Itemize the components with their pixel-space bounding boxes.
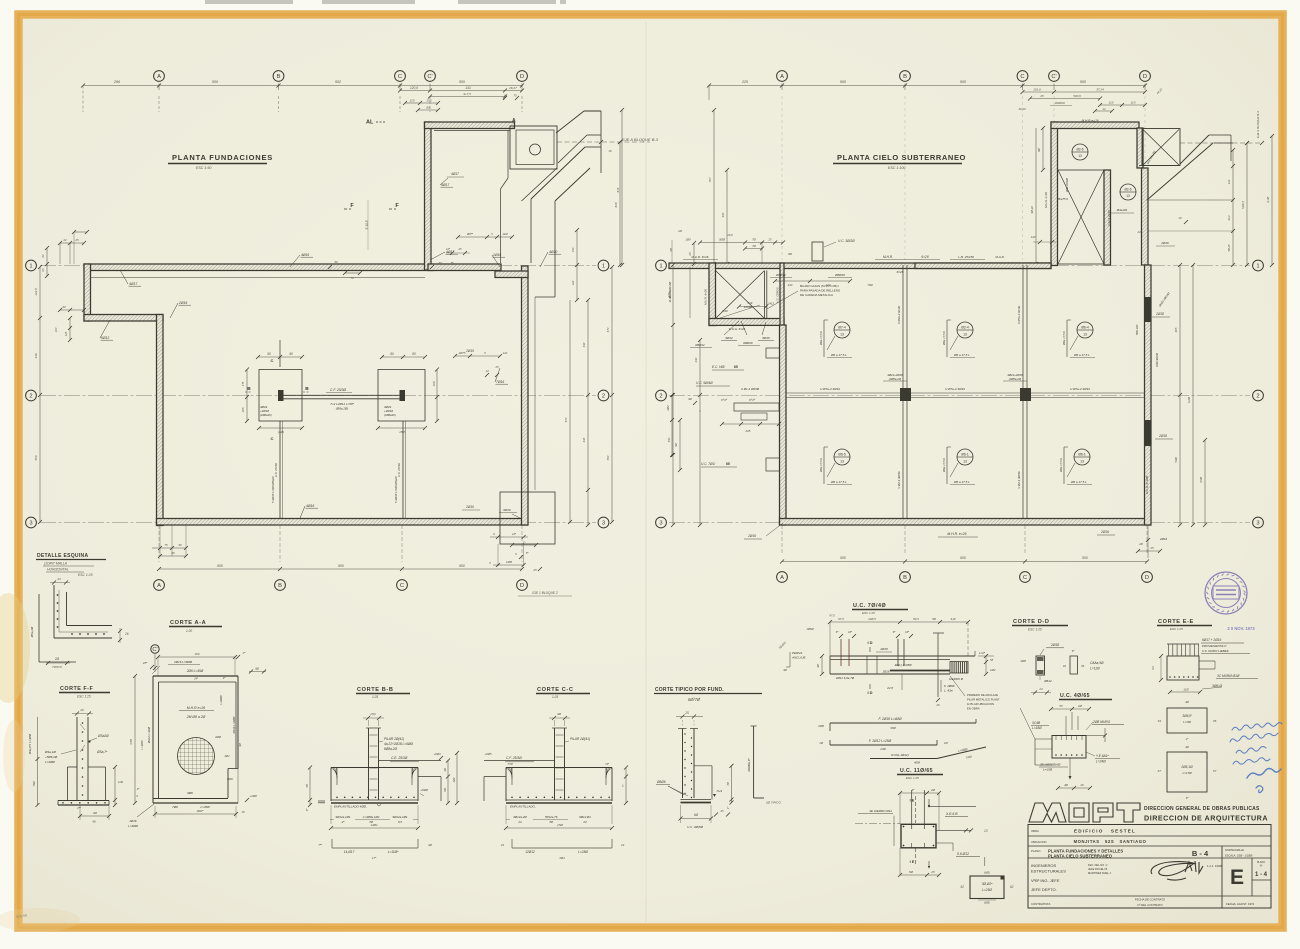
svg-text:L=4Ø9a,1Ø2: L=4Ø9a,1Ø2: [363, 815, 380, 819]
svg-text:X.E.6.B: X.E.6.B: [945, 812, 958, 816]
svg-text:4ØØ: 4ØØ: [914, 761, 921, 765]
svg-text:6Ø/7Ø: 6Ø/7Ø: [688, 697, 701, 702]
svg-text:4Ø2: 4Ø2: [452, 777, 456, 783]
svg-text:2M Ø8 a 2Ø: 2M Ø8 a 2Ø: [186, 715, 206, 719]
svg-text:+5Ø6,2Ø: +5Ø6,2Ø: [45, 755, 58, 759]
svg-text:590: 590: [667, 437, 671, 442]
svg-text:2Ø: 2Ø: [930, 788, 936, 792]
svg-text:C: C: [1023, 575, 1027, 581]
svg-text:C: C: [271, 436, 274, 441]
svg-text:1ØØ: 1ØØ: [818, 724, 825, 728]
svg-text:L=28Ø: L=28Ø: [578, 850, 588, 854]
svg-text:430: 430: [34, 353, 38, 358]
svg-text:70Ø: 70Ø: [867, 283, 873, 287]
svg-text:Ø6-4: Ø6-4: [1081, 326, 1089, 330]
svg-text:14Ø1: 14Ø1: [370, 823, 378, 827]
svg-text:ANCLAJE: ANCLAJE: [791, 656, 807, 660]
svg-text:98: 98: [255, 667, 259, 671]
svg-text:M.H.R. e=26: M.H.R. e=26: [947, 532, 966, 536]
svg-text:2Ø16: 2Ø16: [178, 301, 187, 305]
svg-text:JEFE DEPTO.: JEFE DEPTO.: [1031, 887, 1057, 892]
svg-text:24: 24: [1038, 687, 1043, 691]
svg-text:CORTE C-C: CORTE C-C: [537, 687, 573, 693]
svg-text:13: 13: [840, 460, 844, 464]
svg-text:5,Ø2,5: 5,Ø2,5: [1241, 200, 1245, 209]
svg-text:OBRA: OBRA: [1031, 829, 1039, 833]
svg-text:500: 500: [1080, 80, 1086, 84]
svg-text:FECHA: AGOST. 1972: FECHA: AGOST. 1972: [1226, 902, 1255, 906]
svg-text:4Ø: 4Ø: [557, 712, 562, 716]
svg-text:(Ø8a,2Ø): (Ø8a,2Ø): [336, 407, 349, 411]
svg-text:60: 60: [62, 305, 66, 309]
svg-text:M.H.R. 9=1Ø8: M.H.R. 9=1Ø8: [1145, 476, 1149, 494]
svg-text:62: 62: [960, 885, 964, 889]
svg-text:26: 26: [935, 703, 940, 707]
svg-text:DIRECCION GENERAL DE OBRAS PUB: DIRECCION GENERAL DE OBRAS PUBLICAS: [1144, 806, 1260, 812]
svg-text:1.2.1. 193Ø: 1.2.1. 193Ø: [1207, 864, 1222, 868]
svg-text:CAAa,9Ø: CAAa,9Ø: [1090, 661, 1104, 665]
svg-text:Ø6a 17,5 h: Ø6a 17,5 h: [819, 458, 823, 473]
svg-text:U.C. CEROS: U.C. CEROS: [776, 287, 780, 302]
svg-text:13: 13: [1080, 460, 1084, 464]
svg-text:h25: h25: [746, 429, 751, 433]
svg-text:TIPICO: TIPICO: [52, 665, 63, 669]
svg-text:(26): (26): [370, 712, 375, 716]
svg-text:2Ø16: 2Ø16: [1159, 537, 1167, 541]
svg-text:A: A: [780, 575, 784, 581]
svg-text:50: 50: [334, 260, 338, 264]
svg-text:23: 23: [582, 820, 587, 824]
svg-text:96: 96: [92, 820, 96, 824]
svg-text:6Ø12: 6Ø12: [101, 336, 109, 340]
svg-text:F. 1Ø66: F. 1Ø66: [944, 684, 955, 688]
svg-text:9Ø12: 9Ø12: [725, 336, 733, 340]
svg-text:U Ø7a-4 30/94: U Ø7a-4 30/94: [820, 387, 840, 391]
svg-text:Ø6a 17,5 h: Ø6a 17,5 h: [1059, 458, 1063, 473]
svg-text:2Ø18: 2Ø18: [1158, 434, 1167, 438]
svg-text:CORTE A-A: CORTE A-A: [170, 620, 206, 626]
svg-text:930: 930: [721, 212, 725, 217]
svg-text:2Ø8: 2Ø8: [1019, 659, 1026, 663]
svg-text:D: D: [520, 74, 524, 80]
svg-text:ØSa2Ø: ØSa2Ø: [97, 734, 109, 738]
svg-text:500: 500: [840, 556, 846, 560]
svg-text:25: 25: [532, 568, 537, 572]
svg-text:ESC 1:25: ESC 1:25: [862, 611, 875, 615]
svg-text:U.C. 7Ø1/: U.C. 7Ø1/: [701, 462, 716, 466]
svg-text:V.22-4 20/45: V.22-4 20/45: [1107, 210, 1111, 226]
svg-text:25: 25: [719, 809, 724, 813]
svg-text:EJE A BLOQUE B-4: EJE A BLOQUE B-4: [1256, 111, 1260, 138]
svg-text:Ø6a 17,5 h: Ø6a 17,5 h: [1062, 331, 1066, 346]
svg-text:L=3ØØ: L=3ØØ: [140, 740, 144, 750]
svg-text:4Ø16: 4Ø16: [306, 504, 314, 508]
svg-text:2Ø6,1Ø: 2Ø6,1Ø: [1180, 765, 1193, 769]
svg-text:3+7,5: 3+7,5: [463, 92, 471, 96]
svg-text:L=7Ø: L=7Ø: [1183, 720, 1191, 724]
svg-text:BAJAR CAJAS (5×15 h=35)=: BAJAR CAJAS (5×15 h=35)=: [800, 284, 839, 288]
svg-text:ESC 1:50: ESC 1:50: [196, 166, 211, 170]
svg-text:M.U.R. 6=26: M.U.R. 6=26: [704, 289, 708, 305]
svg-text:7×2Ø18 L=650 Ø8a20: 7×2Ø18 L=650 Ø8a20: [394, 476, 398, 503]
svg-text:D: D: [1145, 575, 1149, 581]
svg-text:48,10: 48,10: [1019, 107, 1026, 111]
svg-text:PILAR 2Ø(41): PILAR 2Ø(41): [570, 737, 590, 741]
svg-text:97,5: 97,5: [829, 614, 835, 618]
svg-text:25: 25: [684, 711, 689, 715]
svg-text:6ª,6ª: 6ª,6ª: [749, 398, 756, 402]
svg-text:60: 60: [41, 254, 45, 258]
svg-text:+6Ø3: +6Ø3: [433, 752, 441, 756]
svg-text:Ø6-5: Ø6-5: [838, 453, 846, 457]
svg-text:ESTRUCTURALES: ESTRUCTURALES: [1031, 869, 1066, 874]
svg-text:+6Ø5: +6Ø5: [484, 752, 492, 756]
svg-text:143: 143: [465, 86, 471, 90]
svg-text:F. 2Ø18 L=4ØØ: F. 2Ø18 L=4ØØ: [878, 717, 902, 721]
svg-text:23,2: 23,2: [1227, 215, 1231, 222]
svg-text:7Ø6: 7Ø6: [172, 805, 178, 809]
svg-text:24: 24: [1136, 230, 1141, 234]
svg-text:37,24: 37,24: [1096, 88, 1104, 92]
svg-text:6Ø17 + 2Ø16: 6Ø17 + 2Ø16: [1202, 638, 1221, 642]
svg-text:4Ø2: 4Ø2: [224, 754, 230, 758]
svg-text:3Ø,Ø2ᵃ: 3Ø,Ø2ᵃ: [982, 882, 993, 886]
svg-text:U Ø7a-4 30/94: U Ø7a-4 30/94: [1070, 387, 1090, 391]
svg-text:L=17Ø: L=17Ø: [1182, 771, 1192, 775]
svg-text:434: 434: [582, 342, 586, 347]
svg-text:60: 60: [426, 106, 430, 110]
svg-text:4,9Ø: 4,9Ø: [1199, 476, 1203, 483]
svg-text:2: 2: [659, 394, 662, 400]
svg-text:26,27: 26,27: [508, 86, 517, 90]
svg-text:75: 75: [450, 261, 454, 265]
svg-text:25: 25: [1149, 546, 1154, 550]
svg-text:13: 13: [963, 460, 967, 464]
svg-text:36: 36: [1081, 664, 1085, 668]
svg-text:4Ø16: 4Ø16: [301, 253, 309, 257]
svg-text:14: 14: [485, 369, 489, 373]
svg-text:970: 970: [564, 417, 568, 422]
svg-text:PRIMERO DE ANCLAJE: PRIMERO DE ANCLAJE: [967, 693, 998, 697]
svg-text:(JOINT MALLA: (JOINT MALLA: [44, 562, 68, 566]
svg-text:2Ø12 6,6a,7Ø: 2Ø12 6,6a,7Ø: [835, 676, 855, 680]
svg-text:89,5: 89,5: [913, 617, 919, 621]
svg-text:28ᵃ: 28ᵃ: [142, 661, 148, 665]
svg-text:V Ø2-4 3Ø/36: V Ø2-4 3Ø/36: [897, 471, 901, 489]
svg-text:2Ø16 L=6ØØ: 2Ø16 L=6ØØ: [173, 660, 193, 664]
svg-text:25: 25: [1039, 94, 1044, 98]
svg-text:6,2Ø: 6,2Ø: [1187, 396, 1191, 403]
svg-text:B: B: [903, 74, 907, 80]
svg-text:6Ø16: 6Ø16: [762, 336, 770, 340]
svg-text:Y.E.6A1ᵃ: Y.E.6A1ᵃ: [1096, 754, 1109, 758]
svg-text:5ØØ: 5ØØ: [719, 238, 726, 242]
svg-text:500: 500: [960, 80, 966, 84]
svg-text:230: 230: [694, 357, 698, 363]
svg-text:25: 25: [457, 247, 462, 251]
svg-text:22: 22: [62, 238, 67, 242]
svg-text:Ø2-4: Ø2-4: [961, 326, 969, 330]
svg-text:PLANTA CIELO SUBTERRANEO: PLANTA CIELO SUBTERRANEO: [837, 153, 966, 162]
svg-text:I E: I E: [910, 860, 915, 864]
svg-text:13: 13: [1083, 333, 1087, 337]
svg-text:C.F. 25/30: C.F. 25/30: [397, 463, 401, 477]
svg-text:815: 815: [616, 187, 620, 192]
svg-text:EJE A BLOQUE B-3: EJE A BLOQUE B-3: [622, 137, 659, 142]
svg-text:6ª,6ª: 6ª,6ª: [721, 398, 728, 402]
svg-text:(JØ8a20): (JØ8a20): [384, 413, 396, 417]
svg-text:A: A: [157, 583, 161, 589]
svg-text:V Ø2a-4 60/26: V Ø2a-4 60/26: [897, 305, 901, 324]
svg-text:650: 650: [338, 564, 344, 568]
svg-text:NORTE/GRILLE: NORTE/GRILLE: [1225, 848, 1244, 852]
svg-text:ØØ2: ØØ2: [226, 777, 233, 781]
svg-text:4a,22+2Ø18 L=6ØØ: 4a,22+2Ø18 L=6ØØ: [384, 742, 413, 746]
svg-text:6,Ø: 6,Ø: [951, 617, 956, 621]
svg-text:1Ø16: 1Ø16: [493, 253, 501, 257]
svg-text:225: 225: [741, 80, 748, 84]
svg-text:120,6: 120,6: [410, 86, 418, 90]
svg-text:Ø6 a 17,5 L: Ø6 a 17,5 L: [953, 480, 970, 484]
svg-text:2Ø18: 2Ø18: [1155, 312, 1164, 316]
svg-text:90: 90: [289, 352, 293, 356]
svg-text:500: 500: [212, 80, 218, 84]
svg-text:105: 105: [241, 407, 245, 412]
svg-text:2Ø18: 2Ø18: [1050, 643, 1059, 647]
svg-text:M.H.R e=26: M.H.R e=26: [187, 706, 205, 710]
svg-text:6=26: 6=26: [921, 255, 928, 259]
svg-text:L=6ØØ: L=6ØØ: [219, 695, 223, 705]
svg-text:2Ø18: 2Ø18: [879, 647, 888, 651]
svg-text:3: 3: [29, 521, 32, 527]
svg-text:R=6(L,1Ø12): R=6(L,1Ø12): [891, 753, 908, 757]
svg-text:6Ø16: 6Ø16: [503, 508, 511, 512]
svg-text:9Ø12a,1Ø1: 9Ø12a,1Ø1: [393, 815, 408, 819]
svg-text:80: 80: [171, 551, 175, 555]
svg-text:3: 3: [659, 521, 662, 527]
svg-text:+49Ø: +49Ø: [249, 794, 257, 798]
svg-text:600: 600: [960, 556, 966, 560]
svg-text:(JØ8a,20): (JØ8a,20): [1009, 377, 1022, 381]
svg-text:Ø6a 17,5 h: Ø6a 17,5 h: [819, 331, 823, 346]
svg-text:CORTE B-B: CORTE B-B: [357, 687, 393, 693]
svg-text:-5+9: -5+9: [716, 789, 722, 793]
svg-text:90: 90: [267, 352, 271, 356]
svg-text:4Ø(L) L=95Ø: 4Ø(L) L=95Ø: [895, 663, 913, 667]
svg-text:3: 3: [602, 521, 605, 527]
svg-text:62: 62: [1010, 885, 1014, 889]
svg-text:435: 435: [582, 437, 586, 442]
svg-text:4Ø,22: 4Ø,22: [1030, 206, 1034, 214]
svg-text:HORIZONTAL: HORIZONTAL: [47, 568, 69, 572]
svg-text:58: 58: [990, 658, 994, 662]
svg-text:ESC 1:25: ESC 1:25: [77, 695, 91, 699]
svg-text:24: 24: [56, 577, 61, 581]
svg-text:PLANO: PLANO: [1031, 849, 1041, 853]
svg-text:C': C': [152, 647, 157, 653]
svg-text:9Ø12,Ø1: 9Ø12,Ø1: [579, 815, 591, 819]
svg-text:9Ø6: 9Ø6: [187, 791, 193, 795]
svg-text:Ø6 a 17,5 L: Ø6 a 17,5 L: [830, 353, 847, 357]
svg-text:2Ø: 2Ø: [1077, 704, 1083, 708]
svg-text:I D: I D: [867, 640, 872, 645]
svg-text:CORTE D-D: CORTE D-D: [1013, 619, 1049, 625]
svg-text:(JØ8a,20): (JØ8a,20): [889, 377, 902, 381]
svg-text:ESC 1:25: ESC 1:25: [906, 776, 919, 780]
svg-text:1:25: 1:25: [372, 695, 378, 699]
svg-text:13: 13: [984, 829, 988, 833]
svg-text:JØ18: JØ18: [883, 670, 890, 674]
svg-text:8Ø8a,2Ø: 8Ø8a,2Ø: [384, 747, 397, 751]
svg-text:Ø6Ø6: Ø6Ø6: [656, 780, 666, 784]
svg-text:ESC 1:25: ESC 1:25: [1170, 627, 1183, 631]
svg-text:EDIFICIO SESTEL: EDIFICIO SESTEL: [1074, 829, 1136, 834]
svg-text:23: 23: [620, 843, 625, 847]
svg-text:A: A: [780, 74, 784, 80]
svg-text:25Ø: 25Ø: [556, 823, 563, 827]
svg-text:2Ø2: 2Ø2: [666, 405, 670, 412]
svg-text:13: 13: [840, 333, 844, 337]
svg-text:4Ø17: 4Ø17: [441, 183, 449, 187]
svg-text:13: 13: [1078, 154, 1082, 158]
svg-text:1Ø2: 1Ø2: [990, 668, 996, 672]
svg-text:Ø6ᵃᵃ: Ø6ᵃᵃ: [466, 232, 474, 236]
svg-text:DETALLE ESQUINA: DETALLE ESQUINA: [37, 553, 88, 559]
svg-text:C.F. 25/3Ø: C.F. 25/3Ø: [506, 756, 522, 760]
svg-text:PARA PASADA DE RELLENO: PARA PASADA DE RELLENO: [800, 289, 841, 293]
svg-text:50: 50: [178, 543, 182, 547]
svg-text:U.C. 11Ø/65: U.C. 11Ø/65: [900, 768, 933, 774]
svg-text:UBICACION: UBICACION: [1031, 840, 1047, 844]
svg-text:& PILAR UBICACION: & PILAR UBICACION: [967, 702, 994, 706]
svg-text:2Ø6 L=45Ø: 2Ø6 L=45Ø: [186, 669, 204, 673]
svg-text:FECHA DE CONTRATO: FECHA DE CONTRATO: [1135, 898, 1166, 902]
svg-text:3Ø6,R: 3Ø6,R: [1182, 714, 1192, 718]
svg-text:1: 1: [602, 264, 605, 270]
svg-text:570: 570: [606, 327, 610, 332]
svg-text:7Ø6 220: 7Ø6 220: [1135, 324, 1139, 335]
svg-text:+54Ø: +54Ø: [420, 788, 428, 792]
svg-text:L=11Øᵃ: L=11Øᵃ: [388, 850, 399, 854]
svg-text:94: 94: [1158, 719, 1162, 723]
svg-text:2Ø16: 2Ø16: [1100, 530, 1109, 534]
svg-text:100: 100: [54, 327, 58, 332]
svg-text:1: 1: [29, 264, 32, 270]
svg-text:C': C': [427, 74, 432, 80]
svg-text:3E HIERRO Ø12: 3E HIERRO Ø12: [869, 809, 892, 813]
svg-text:M.H.H. 6=26: M.H.H. 6=26: [729, 327, 746, 331]
svg-text:Ø6 a 17,5 L: Ø6 a 17,5 L: [1073, 353, 1090, 357]
svg-text:I E: I E: [910, 799, 915, 803]
svg-text:ØSa,7ᵃ: ØSa,7ᵃ: [96, 750, 108, 754]
svg-text:Ø6Ø16: Ø6Ø16: [742, 341, 753, 345]
svg-text:500: 500: [1082, 556, 1088, 560]
svg-text:L=12Ø: L=12Ø: [1090, 667, 1100, 671]
svg-text:Ø4a 20%Ø: Ø4a 20%Ø: [1065, 177, 1069, 193]
svg-text:MONJITAS 52S SANTIAGO: MONJITAS 52S SANTIAGO: [1074, 839, 1147, 844]
svg-text:VºBº ING. JEFE: VºBº ING. JEFE: [1031, 878, 1060, 883]
svg-text:650: 650: [217, 564, 223, 568]
svg-text:550: 550: [34, 455, 38, 460]
svg-text:CONTRATISTA: CONTRATISTA: [1031, 902, 1050, 906]
svg-text:PILAR METALICO PLANT: PILAR METALICO PLANT: [967, 698, 1000, 702]
svg-text:PROVENIENTE P: PROVENIENTE P: [1202, 644, 1226, 648]
svg-text:B: B: [247, 386, 251, 392]
svg-text:122: 122: [1227, 179, 1231, 184]
svg-text:5.10.8: 5.10.8: [365, 220, 369, 229]
svg-text:C: C: [398, 74, 402, 80]
svg-text:1:25: 1:25: [552, 695, 558, 699]
svg-text:Ø612: Ø612: [1043, 679, 1052, 683]
svg-text:PERNA: PERNA: [792, 651, 802, 655]
svg-text:C.F. 25/3Ø: C.F. 25/3Ø: [330, 388, 347, 392]
svg-text:B: B: [903, 575, 907, 581]
svg-text:L=4ØØ: L=4ØØ: [128, 824, 138, 828]
svg-text:65: 65: [41, 268, 45, 272]
svg-text:Ø6a 17,5 h: Ø6a 17,5 h: [942, 331, 946, 346]
svg-text:ESC 1:25: ESC 1:25: [78, 573, 93, 577]
svg-text:150: 150: [571, 247, 575, 252]
svg-text:L.M. 25/250: L.M. 25/250: [958, 255, 974, 259]
svg-text:18Ø: 18Ø: [399, 430, 405, 434]
svg-text:820: 820: [614, 202, 618, 207]
svg-text:Ø4a,6ᵃ1 L=3ØØ: Ø4a,6ᵃ1 L=3ØØ: [28, 733, 32, 755]
svg-text:JEFE ROCELI B.: JEFE ROCELI B.: [1088, 867, 1108, 871]
svg-text:12Ø12: 12Ø12: [525, 850, 535, 854]
svg-text:EMPLANTILLADO 4ØØ,: EMPLANTILLADO 4ØØ,: [334, 805, 367, 809]
svg-text:80: 80: [412, 352, 416, 356]
svg-text:(6Ø): (6Ø): [984, 901, 990, 905]
svg-text:ØSa,1Ø: ØSa,1Ø: [44, 750, 57, 754]
svg-text:502: 502: [335, 80, 341, 84]
svg-text:67: 67: [1158, 769, 1162, 773]
svg-text:13: 13: [1126, 194, 1130, 198]
svg-text:1Ø9: 1Ø9: [685, 238, 691, 242]
svg-text:296: 296: [113, 80, 120, 84]
svg-text:Ø2-6: Ø2-6: [1124, 188, 1131, 192]
svg-text:Nº DEL CONTRATO: Nº DEL CONTRATO: [1137, 903, 1163, 907]
svg-text:Ø4a,Ø1: Ø4a,Ø1: [1116, 208, 1128, 212]
svg-text:D: D: [520, 583, 524, 589]
svg-text:Ø7-4: Ø7-4: [838, 326, 846, 330]
svg-text:26: 26: [124, 632, 129, 636]
svg-text:22.8: 22.8: [886, 686, 893, 690]
svg-text:120: 120: [1031, 235, 1036, 239]
svg-text:(6Ø): (6Ø): [984, 871, 990, 875]
svg-text:5.6.Ø12: 5.6.Ø12: [957, 852, 969, 856]
svg-text:110: 110: [1109, 101, 1114, 105]
svg-text:Ø6-1: Ø6-1: [1078, 453, 1086, 457]
svg-text:11Ø: 11Ø: [502, 232, 508, 236]
svg-text:ESCALA: 1/5Ø - 1/1ØØ: ESCALA: 1/5Ø - 1/1ØØ: [1225, 854, 1252, 858]
svg-text:2Ø16: 2Ø16: [747, 534, 756, 538]
svg-text:23: 23: [517, 820, 522, 824]
svg-text:122,8: 122,8: [34, 288, 38, 296]
svg-text:Ø616 L=6ØØ: Ø616 L=6ØØ: [232, 716, 236, 735]
svg-text:EJE 1 BLOQUE 2: EJE 1 BLOQUE 2: [532, 591, 558, 595]
svg-text:101,6: 101,6: [1033, 88, 1041, 92]
svg-text:B: B: [277, 74, 281, 80]
svg-text:500: 500: [459, 80, 465, 84]
svg-text:Ø6 a 17,5 L: Ø6 a 17,5 L: [830, 480, 847, 484]
svg-text:6Ø: 6Ø: [694, 813, 699, 817]
svg-text:2Ø TIPICO: 2Ø TIPICO: [765, 801, 782, 805]
svg-text:10h3Ø: 10h3Ø: [744, 305, 753, 309]
svg-text:590,6: 590,6: [1073, 94, 1081, 98]
svg-text:2Ø15: 2Ø15: [465, 349, 474, 353]
svg-text:U.C. 3Ø(5Ø: U.C. 3Ø(5Ø: [687, 825, 704, 829]
svg-text:9Ø12a,2Ø: 9Ø12a,2Ø: [513, 815, 527, 819]
